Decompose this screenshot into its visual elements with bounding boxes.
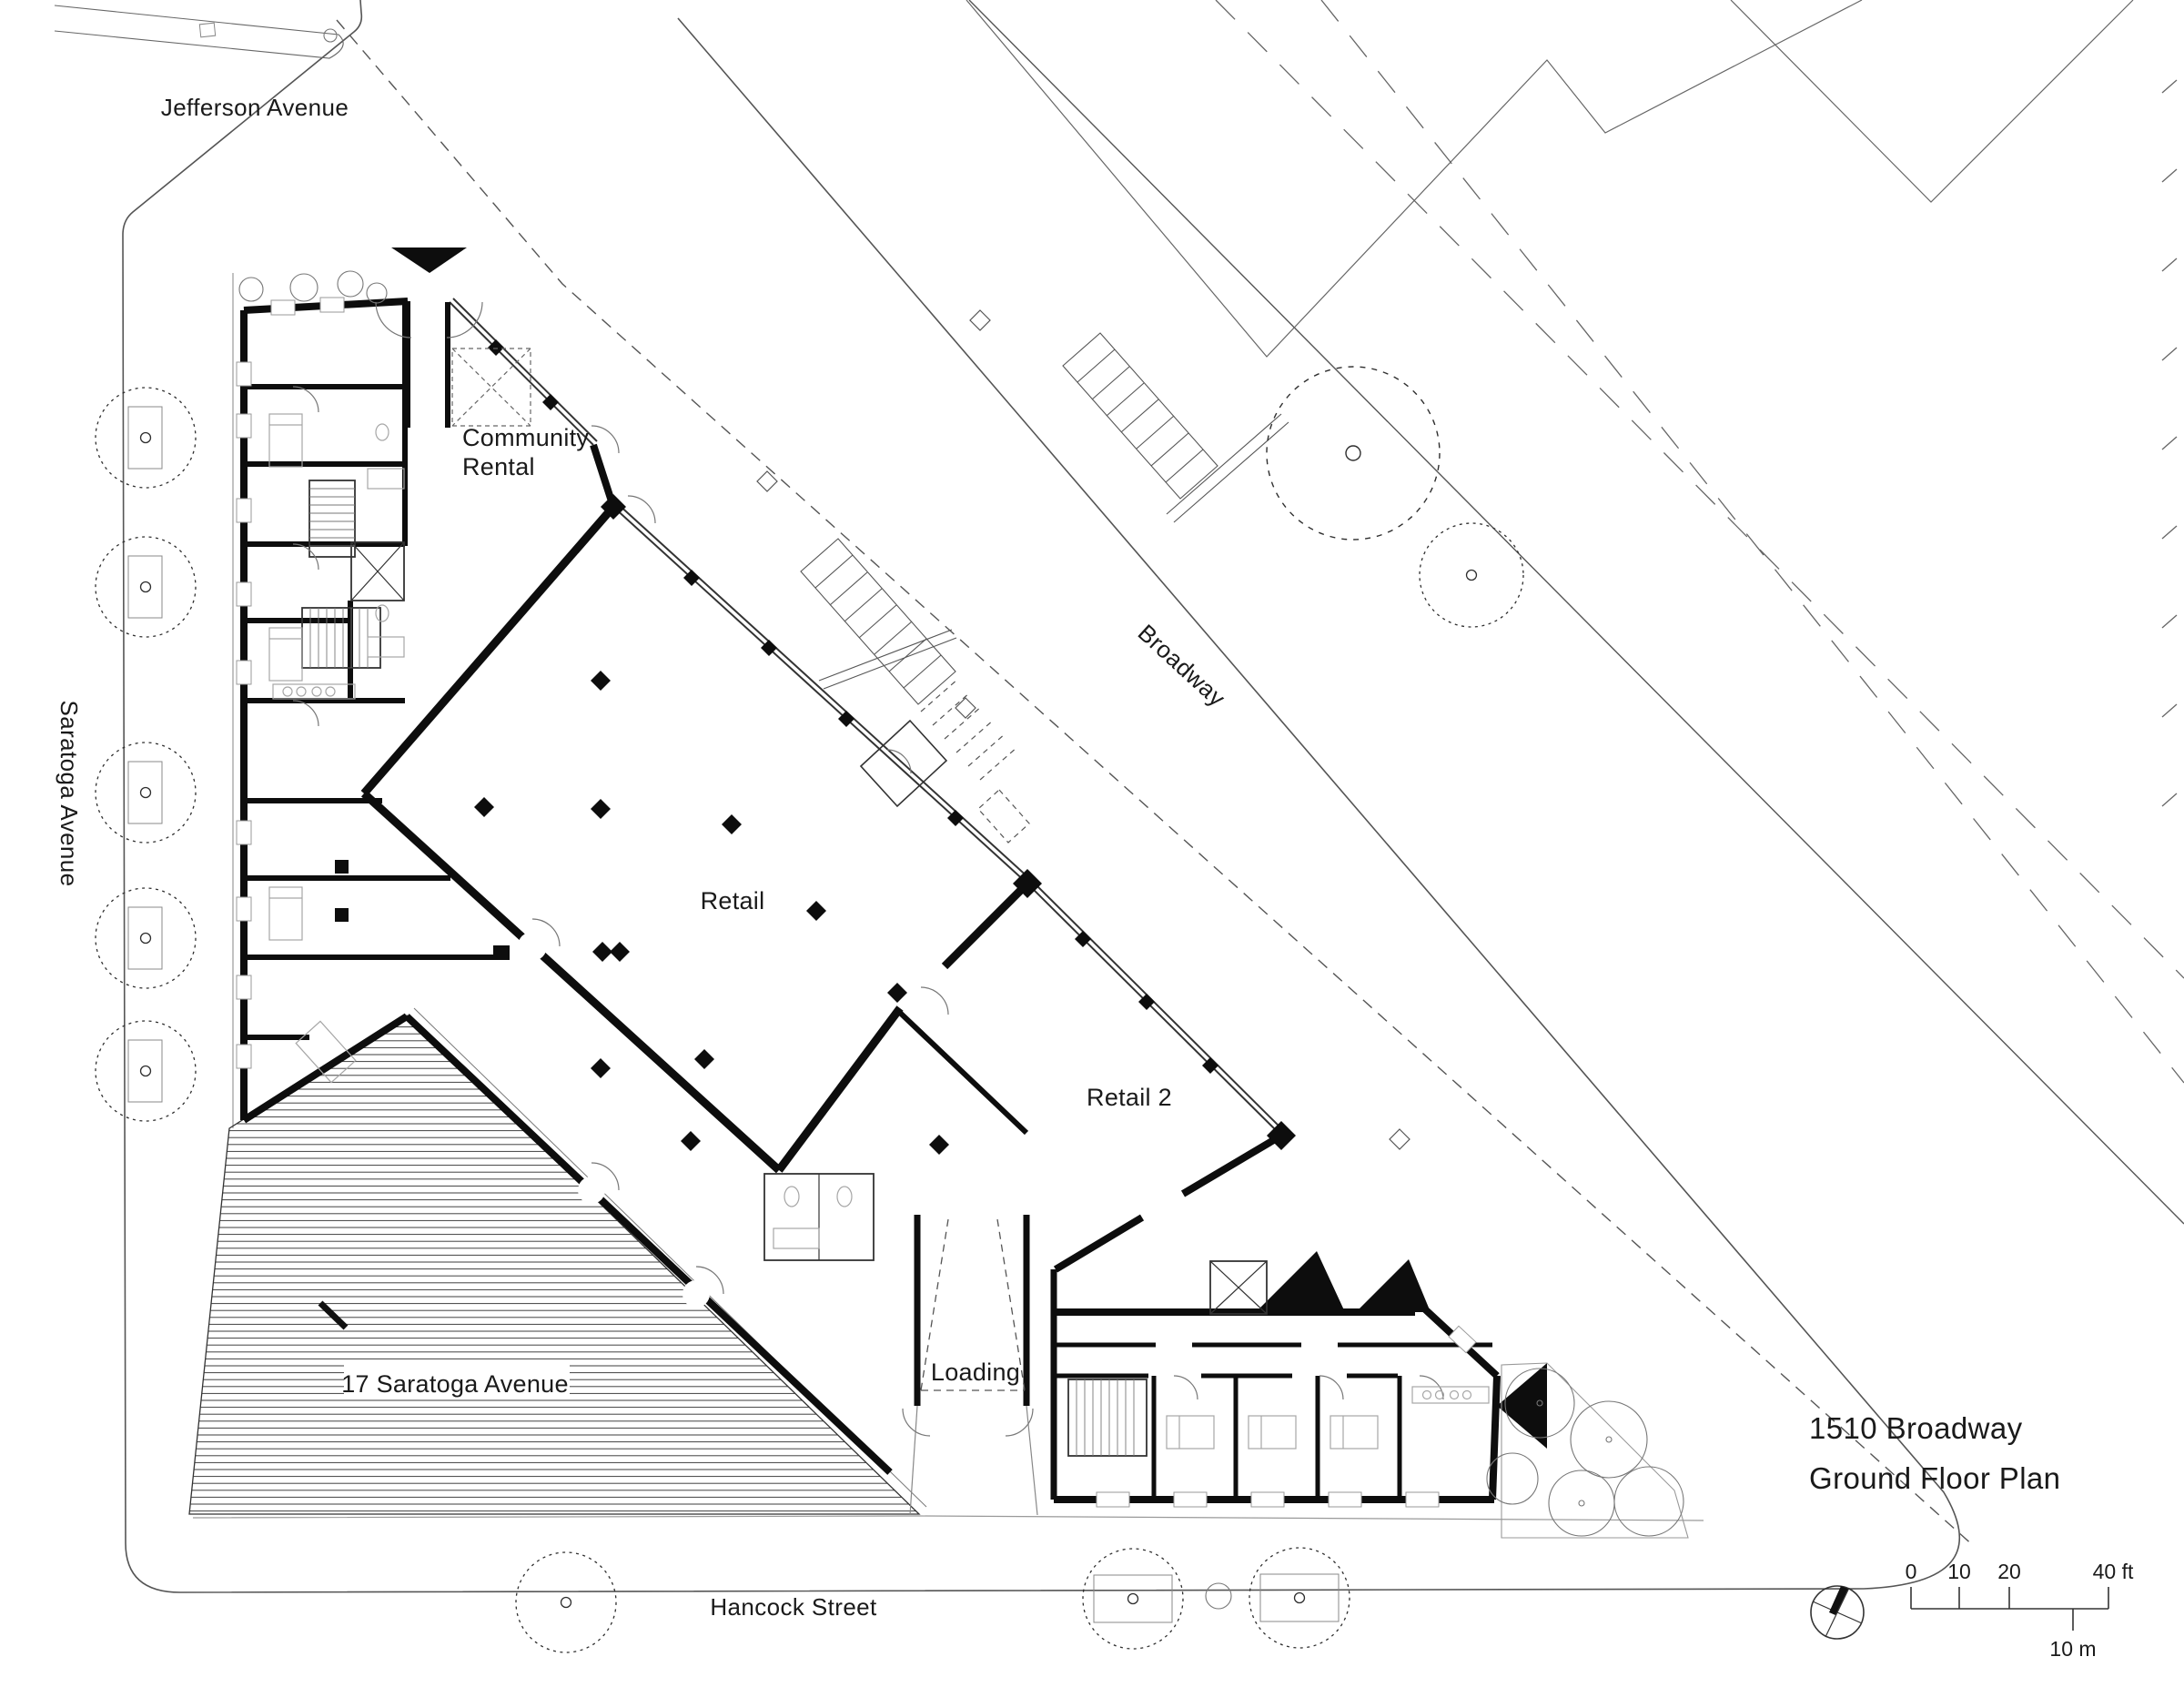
street-label-jefferson: Jefferson Avenue <box>161 94 349 121</box>
tree-row-hancock <box>516 1548 1350 1652</box>
broadway-far-curb <box>969 0 2184 1224</box>
lot-line-south <box>193 1516 1704 1520</box>
scale-tick-10: 10 <box>1947 1560 1971 1583</box>
room-label-loading: Loading <box>931 1359 1020 1386</box>
subway-stair-dashed-continuation <box>921 679 1029 843</box>
street-label-hancock: Hancock Street <box>710 1593 877 1621</box>
north-face-planters <box>239 271 387 303</box>
sidewalk-utility-diamonds <box>757 310 1410 1149</box>
room-label-community-1: Community <box>462 424 589 451</box>
room-label-community-2: Rental <box>462 453 535 480</box>
scale-bar <box>1911 1587 2108 1631</box>
tree-row-broadway <box>1267 367 1523 627</box>
jefferson-utility-circle <box>324 29 337 42</box>
room-label-retail2: Retail 2 <box>1087 1084 1172 1111</box>
plan-title-line2: Ground Floor Plan <box>1809 1461 2060 1495</box>
neighbor-buildings-outline <box>966 0 2133 357</box>
loading-driveway-edges <box>910 1406 1037 1515</box>
broadway-centerline-1 <box>1216 0 2184 978</box>
hancock-tree-pit-small <box>1206 1583 1231 1609</box>
tree-row-saratoga <box>96 388 196 1121</box>
room-label-neighbor: 17 Saratoga Avenue <box>341 1370 569 1398</box>
scale-tick-0: 0 <box>1906 1560 1917 1583</box>
scale-tick-40ft: 40 ft <box>2093 1560 2134 1583</box>
room-label-retail: Retail <box>701 887 765 914</box>
subway-stair-near <box>801 539 956 704</box>
scale-bar-labels: 0 10 20 40 ft 10 m <box>1906 1560 2134 1661</box>
subway-stair-far <box>1063 333 1289 522</box>
jefferson-sidewalk-mark <box>199 23 215 37</box>
floor-plan-canvas: Jefferson Avenue Saratoga Avenue Broadwa… <box>0 0 2184 1687</box>
wing-gable-masses <box>1256 1251 1431 1312</box>
plan-title-line1: 1510 Broadway <box>1809 1411 2023 1445</box>
entrance-arrow-north <box>391 247 467 273</box>
right-edge-survey-ticks <box>2162 80 2177 806</box>
jefferson-neighbor-outline <box>55 5 343 58</box>
street-label-saratoga: Saratoga Avenue <box>56 700 83 886</box>
labels: Jefferson Avenue Saratoga Avenue Broadwa… <box>56 94 2060 1621</box>
north-arrow-icon <box>1811 1586 1864 1639</box>
street-label-broadway: Broadway <box>1133 619 1231 712</box>
scale-tick-10m: 10 m <box>2049 1637 2096 1661</box>
loading-retail2-walls <box>899 1012 1492 1500</box>
scale-tick-20: 20 <box>1997 1560 2021 1583</box>
community-flex-room-dashed <box>452 349 531 426</box>
